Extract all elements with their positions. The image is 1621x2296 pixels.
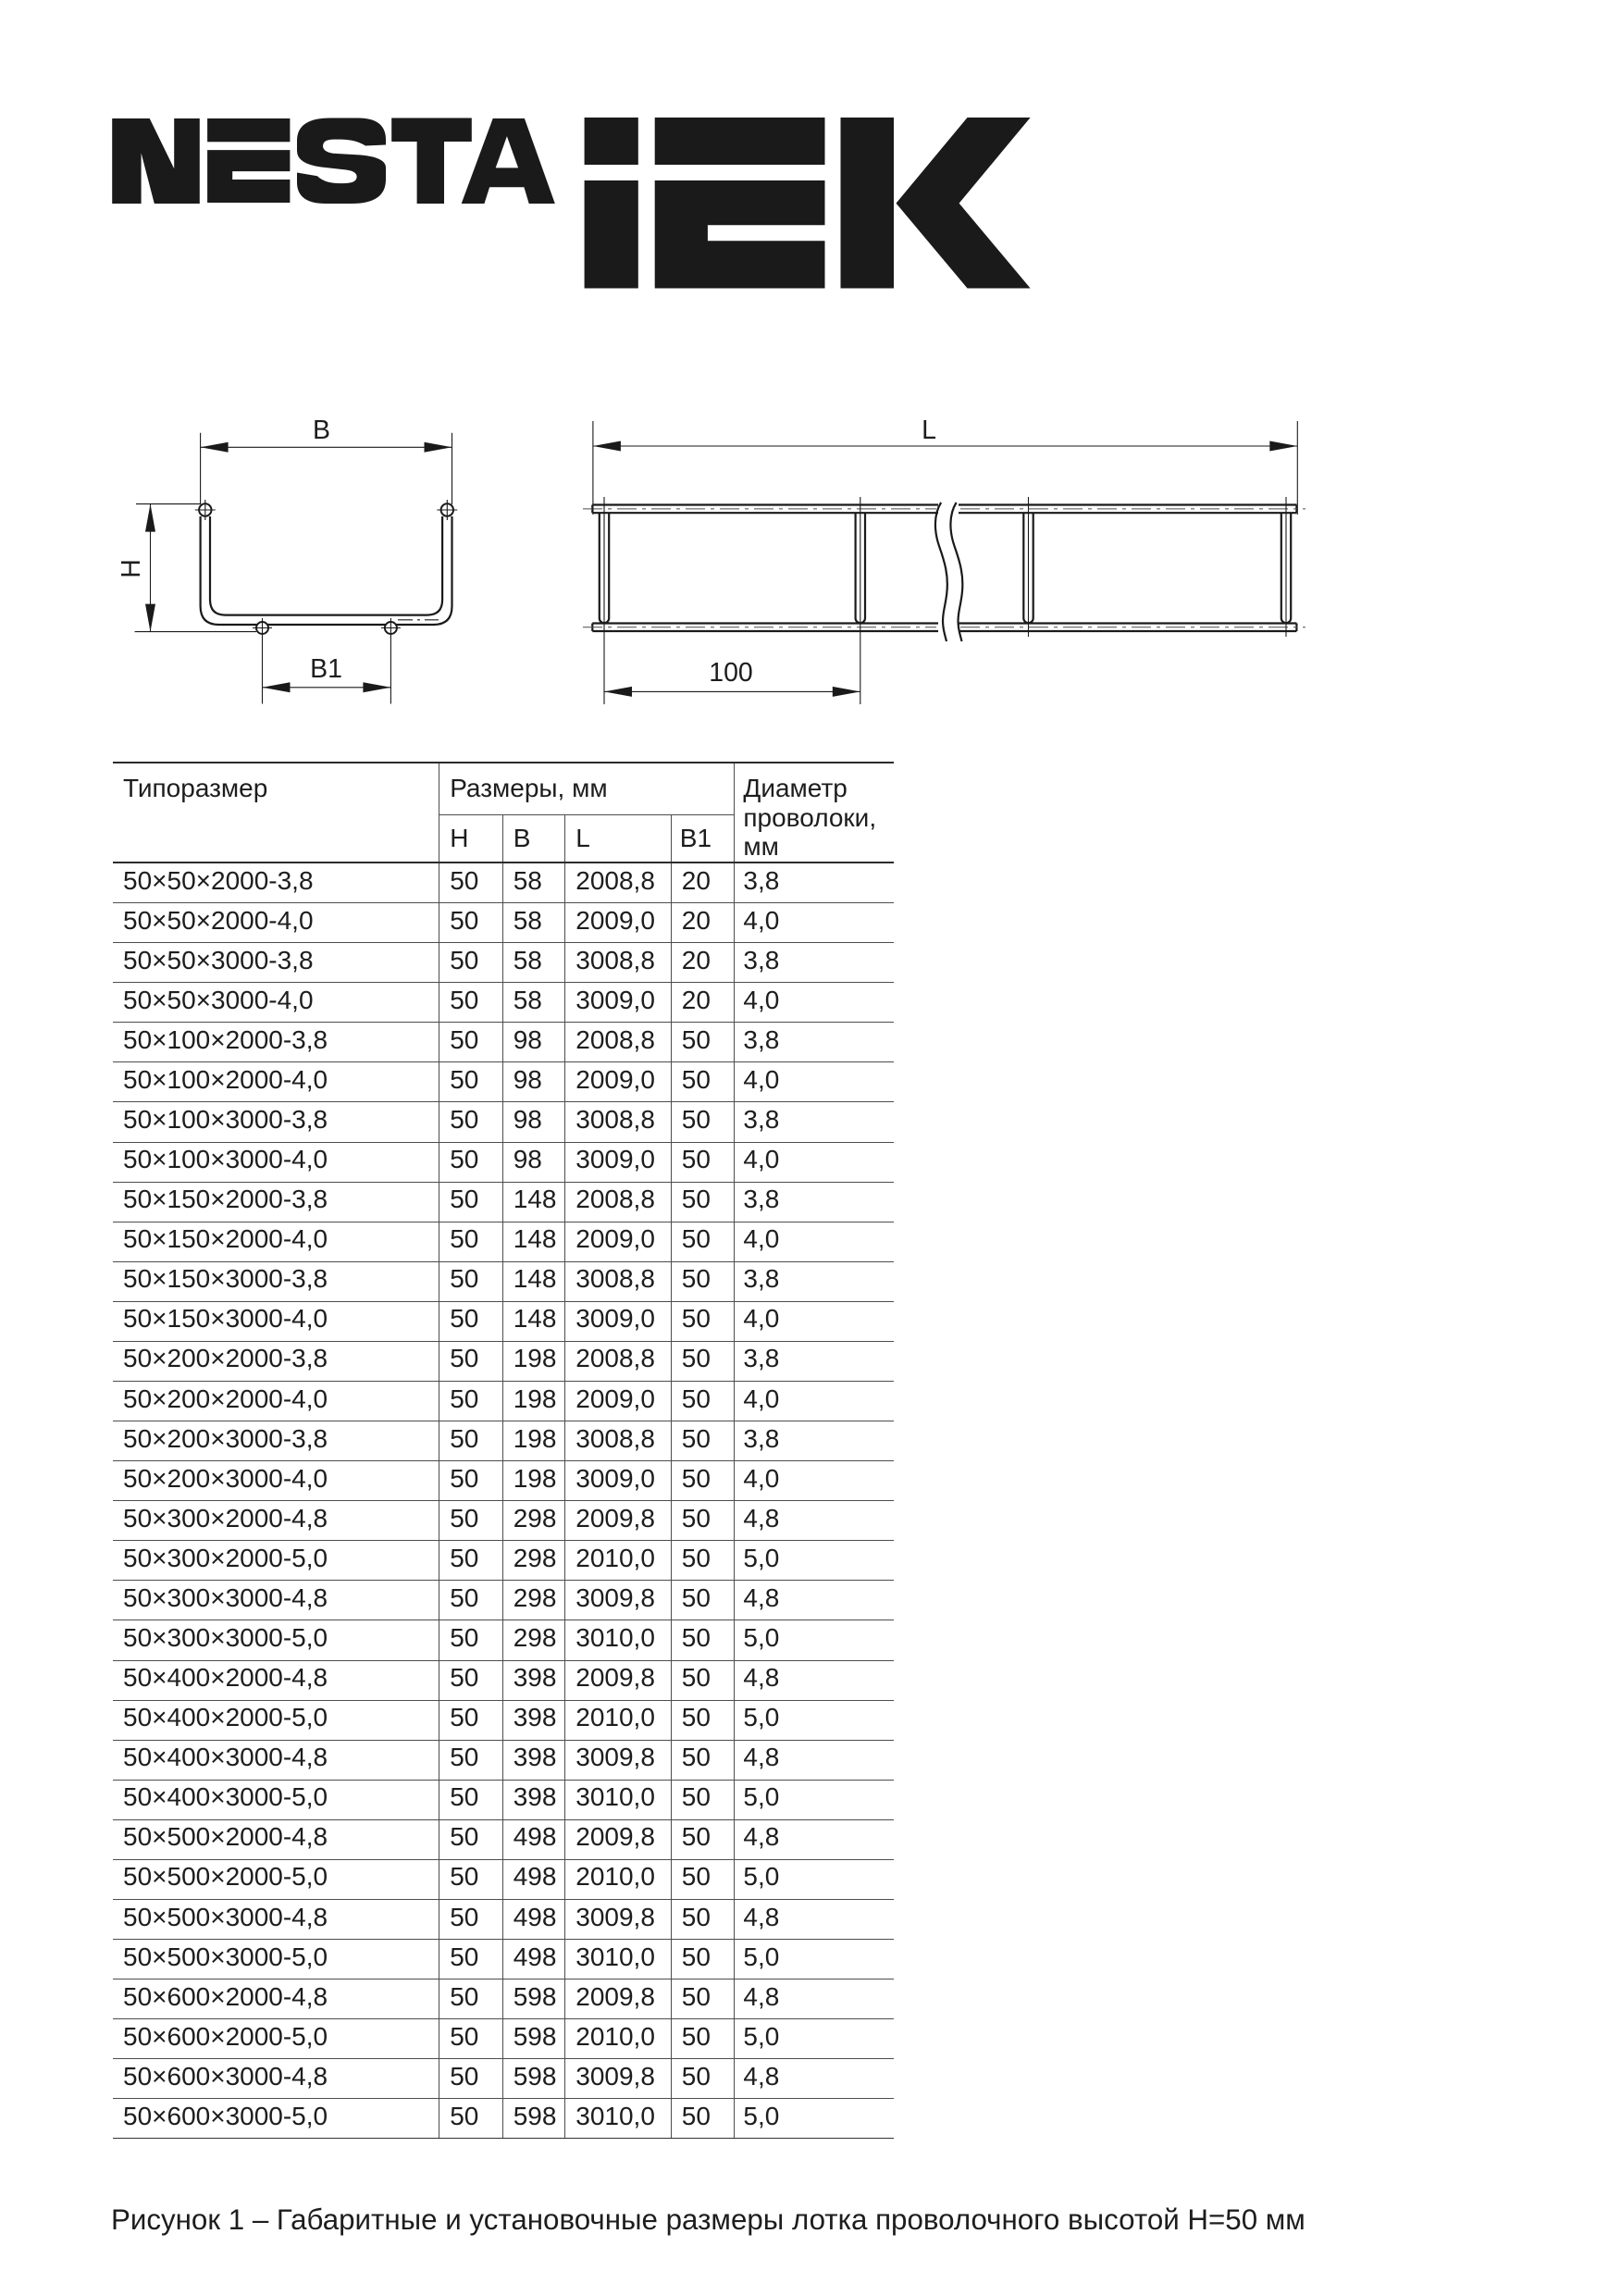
svg-text:L: L: [922, 416, 936, 445]
svg-text:B: B: [313, 416, 330, 445]
svg-text:100: 100: [709, 658, 753, 688]
svg-text:B1: B1: [310, 654, 342, 684]
svg-text:H: H: [117, 559, 146, 578]
